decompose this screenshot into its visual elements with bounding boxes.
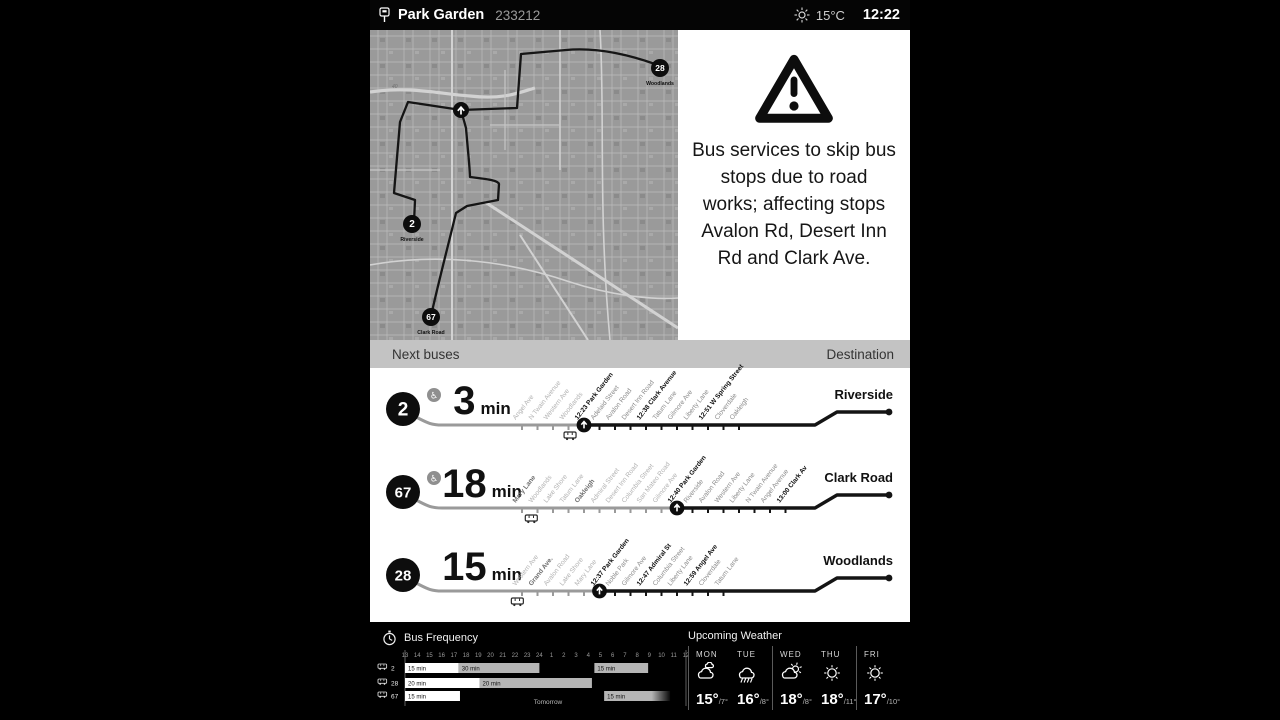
bus-icon — [564, 432, 576, 440]
svg-text:3: 3 — [574, 653, 578, 659]
day-name: MON — [696, 650, 730, 659]
bus-row-2: 2♿3minRiversideAngel AveN Twain AvenueWe… — [370, 370, 910, 451]
svg-text:15 min: 15 min — [408, 694, 426, 700]
svg-text:15 min: 15 min — [408, 666, 426, 672]
svg-text:Riverside: Riverside — [400, 237, 423, 243]
svg-text:20 min: 20 min — [408, 681, 426, 687]
svg-text:Clark Road: Clark Road — [417, 330, 444, 336]
day-name: THU — [821, 650, 856, 659]
weather-day-wed: WED18°/8° — [772, 646, 814, 710]
svg-text:19: 19 — [475, 653, 482, 659]
bus-rows: 2♿3minRiversideAngel AveN Twain AvenueWe… — [370, 368, 910, 622]
svg-text:4: 4 — [587, 653, 591, 659]
weather-title: Upcoming Weather — [688, 630, 782, 642]
partly-sunny-icon — [778, 662, 804, 685]
sunny-icon — [862, 662, 888, 685]
alert-message: Bus services to skip bus stops due to ro… — [691, 138, 897, 273]
weather-day-mon: MON15°/7° — [688, 646, 730, 710]
clouds-icon — [694, 662, 720, 685]
svg-text:1: 1 — [550, 653, 554, 659]
svg-text:28: 28 — [391, 681, 399, 688]
stop-name: Park Garden — [398, 7, 484, 23]
svg-text:30 min: 30 min — [462, 666, 480, 672]
road-label: 40 — [392, 84, 398, 90]
frequency-chart: 1314151617181920212223241234567891011122… — [370, 642, 706, 718]
current-temperature: 15°C — [816, 8, 845, 23]
svg-text:24: 24 — [536, 653, 543, 659]
day-temps: 18°/11° — [821, 691, 856, 709]
weather-day-thu: THU18°/11° — [814, 646, 856, 710]
svg-text:9: 9 — [648, 653, 652, 659]
svg-text:2: 2 — [391, 666, 395, 673]
svg-text:17: 17 — [451, 653, 458, 659]
bus-icon — [511, 598, 523, 606]
svg-text:14: 14 — [414, 653, 421, 659]
svg-text:2: 2 — [409, 219, 415, 230]
svg-text:67: 67 — [426, 312, 436, 322]
svg-text:15 min: 15 min — [597, 666, 615, 672]
bus-stop-icon — [378, 7, 391, 23]
day-name: WED — [780, 650, 814, 659]
bus-icon — [378, 692, 387, 698]
warning-icon — [753, 52, 835, 124]
current-time: 12:22 — [863, 7, 900, 23]
svg-text:7: 7 — [623, 653, 627, 659]
transit-display: Park Garden 233212 15°C 12:22 4028Woodla… — [370, 0, 910, 720]
destination-name: Clark Road — [824, 470, 893, 485]
day-temps: 18°/8° — [780, 691, 814, 709]
svg-text:67: 67 — [395, 485, 412, 502]
svg-text:11: 11 — [671, 653, 678, 659]
svg-text:10: 10 — [658, 653, 665, 659]
bus-row-67: 67♿18minClark RoadMary LaneWoodlandsLake… — [370, 453, 910, 534]
svg-text:2: 2 — [562, 653, 566, 659]
destination-name: Woodlands — [823, 553, 893, 568]
svg-text:Woodlands: Woodlands — [646, 81, 674, 87]
weather-day-fri: FRI17°/10° — [856, 646, 898, 710]
svg-text:6: 6 — [611, 653, 615, 659]
sunny-icon — [819, 662, 845, 685]
day-name: TUE — [737, 650, 772, 659]
weather-day-tue: TUE16°/8° — [730, 646, 772, 710]
tomorrow-label: Tomorrow — [534, 699, 563, 706]
svg-text:21: 21 — [499, 653, 506, 659]
day-temps: 17°/10° — [864, 691, 898, 709]
bus-icon — [378, 679, 387, 685]
svg-text:15 min: 15 min — [607, 694, 625, 700]
svg-text:23: 23 — [524, 653, 531, 659]
footer: Bus Frequency 13141516171819202122232412… — [370, 622, 910, 720]
header-bar: Park Garden 233212 15°C 12:22 — [370, 0, 910, 30]
stop-id: 233212 — [495, 8, 540, 23]
svg-text:8: 8 — [635, 653, 639, 659]
svg-text:22: 22 — [512, 653, 519, 659]
next-buses-label: Next buses — [392, 347, 460, 362]
sun-icon — [794, 7, 810, 23]
route-map: 4028Woodlands2Riverside67Clark Road — [370, 30, 678, 340]
main-panel: 4028Woodlands2Riverside67Clark Road Bus … — [370, 30, 910, 622]
frequency-row-67: 6715 min15 min — [378, 691, 670, 701]
frequency-row-28: 2820 min20 min — [378, 678, 592, 688]
current-stop-marker — [453, 102, 469, 118]
day-temps: 15°/7° — [696, 691, 730, 709]
destination-name: Riverside — [834, 387, 893, 402]
frequency-row-2: 215 min30 min15 min — [378, 663, 648, 673]
bus-row-28: 2815minWoodlandsWestern AveGrand Ave.Ava… — [370, 536, 910, 617]
svg-text:15: 15 — [426, 653, 433, 659]
day-temps: 16°/8° — [737, 691, 772, 709]
svg-text:28: 28 — [395, 568, 412, 585]
bus-icon — [378, 664, 387, 670]
svg-text:5: 5 — [599, 653, 603, 659]
svg-text:18: 18 — [463, 653, 470, 659]
svg-text:16: 16 — [438, 653, 445, 659]
destination-label: Destination — [826, 347, 894, 362]
weather-days: MON15°/7°TUE16°/8°WED18°/8°THU18°/11°FRI… — [688, 646, 898, 710]
rain-icon — [735, 662, 761, 685]
list-header: Next buses Destination — [370, 340, 910, 368]
svg-text:2: 2 — [398, 400, 409, 421]
svg-text:20 min: 20 min — [483, 681, 501, 687]
bus-icon — [525, 515, 537, 523]
svg-text:20: 20 — [487, 653, 494, 659]
day-name: FRI — [864, 650, 898, 659]
svg-text:67: 67 — [391, 694, 399, 701]
service-alert: Bus services to skip bus stops due to ro… — [678, 30, 910, 340]
svg-text:28: 28 — [655, 63, 665, 73]
